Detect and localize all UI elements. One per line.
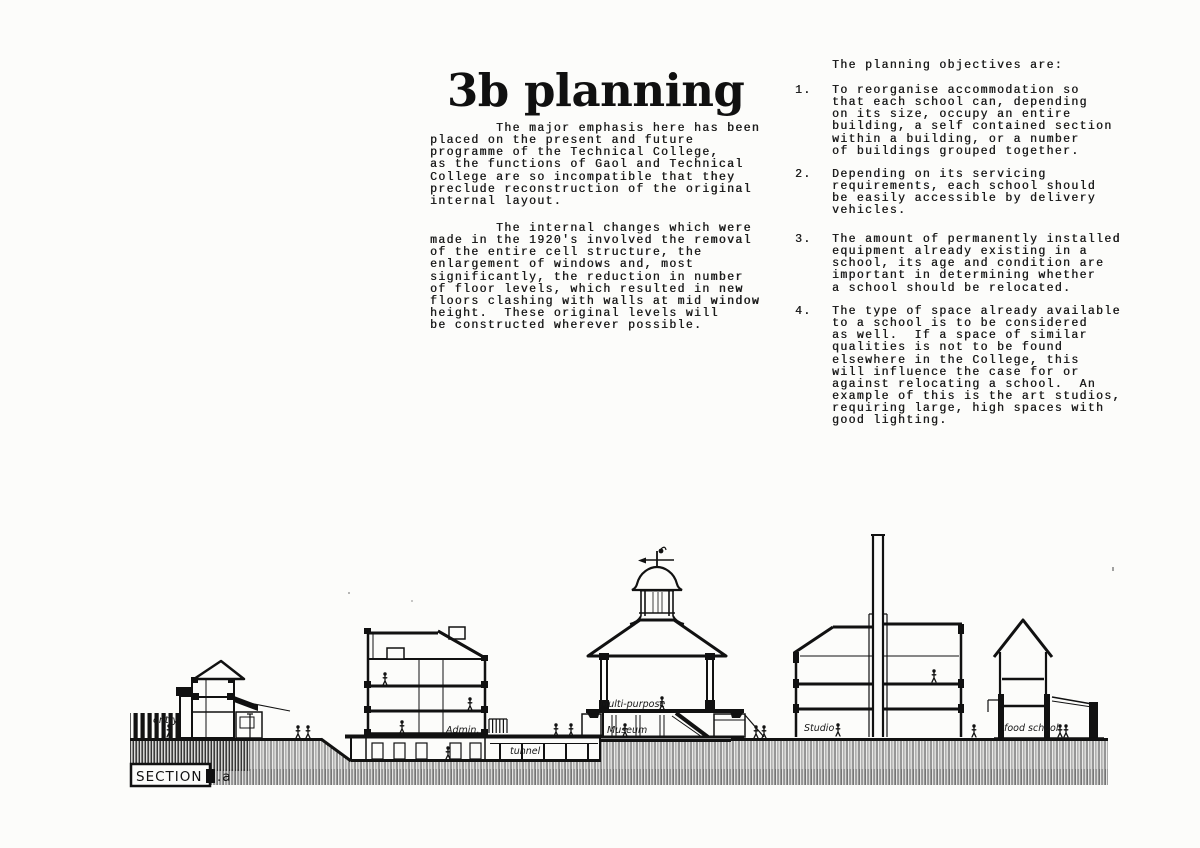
museum-label: Museum [607,725,647,736]
weathervane [638,547,674,567]
objective-text: The type of space already available to a… [832,306,1121,428]
scan-specks [348,518,1114,602]
food-school-building [988,620,1104,739]
chimney [869,535,887,737]
tunnel-section [366,737,598,760]
entry-label: entry [153,715,178,726]
objective-text: Depending on its servicing requirements,… [832,169,1096,218]
objective-item-3: 3. The amount of permanently installed e… [795,234,1121,295]
objective-item-4: 4. The type of space already available t… [795,306,1121,428]
section-label: SECTION a.a [136,769,232,785]
objectives-intro: The planning objectives are: [832,60,1063,72]
multi-purpose-label: Multi-purpose [600,699,665,710]
objective-number: 1. [795,85,832,158]
objective-text: The amount of permanently installed equi… [832,234,1121,295]
studio-label: Studio [804,723,834,734]
scanned-document-page: 3b planning The major emphasis here has … [0,0,1200,848]
admin-label: Admin. [445,725,479,736]
left-paragraph-2: The internal changes which were made in … [430,223,760,332]
objective-text: To reorganise accommodation so that each… [832,85,1113,158]
objective-item-2: 2. Depending on its servicing requiremen… [795,169,1096,218]
objective-item-1: 1. To reorganise accommodation so that e… [795,85,1113,158]
page-title: 3b planning [447,64,744,117]
tunnel-label: tunnel [510,746,541,757]
objective-number: 3. [795,234,832,295]
food-school-label: food school [1004,723,1059,734]
museum-staircase [676,713,708,737]
objective-number: 4. [795,306,832,428]
section-drawing: tunnel entry [0,518,1200,818]
studio-building [793,535,964,737]
cupola [630,547,684,624]
entry-tower-building [176,661,290,738]
objective-number: 2. [795,169,832,218]
left-paragraph-1: The major emphasis here has been placed … [430,123,760,208]
deck-railing [489,719,507,733]
